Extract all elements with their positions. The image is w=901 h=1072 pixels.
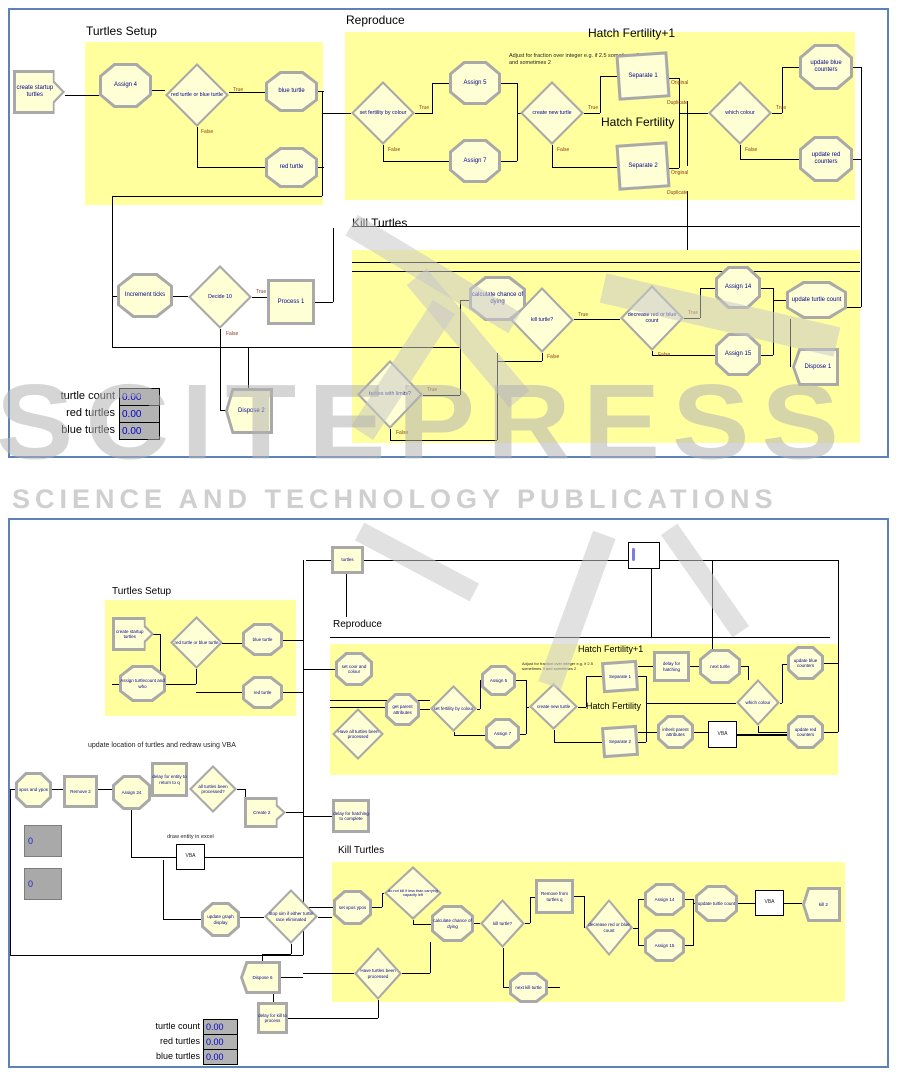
connector-line [318, 167, 324, 168]
node-separate-1-b[interactable]: Separate 1 [602, 661, 638, 692]
connector-line [372, 907, 382, 908]
node-blue-turtle-b[interactable]: blue turtle [242, 623, 283, 656]
connector-line [286, 812, 303, 813]
node-inherit-parent-attributes[interactable]: inherit parent attributes [657, 715, 694, 749]
region-title-reproduce-b: Reproduce [333, 619, 382, 630]
port-label-true: True [233, 87, 243, 93]
connector-line [318, 917, 332, 918]
connector-line [782, 67, 799, 68]
node-create-startup-turtles-b[interactable]: create startup turtles [112, 617, 154, 651]
connector-line [525, 923, 530, 924]
node-kill-2[interactable]: kill 2 [802, 887, 841, 922]
connector-line [383, 145, 384, 161]
node-set-fertility-by-colour[interactable]: set fertility by colour [351, 81, 415, 145]
connector-line [497, 353, 498, 440]
connector-line [322, 91, 323, 196]
connector-line [413, 924, 431, 925]
node-decide-10[interactable]: Decide 10 [188, 265, 252, 329]
connector-line [98, 789, 112, 790]
connector-line [574, 319, 620, 320]
gray-counter-1[interactable]: 0 [24, 825, 62, 857]
counter-label-turtle-count-b: turtle count [135, 1021, 200, 1031]
connector-line [548, 987, 560, 988]
connector-line [378, 1000, 379, 1018]
counter-value-red-turtles[interactable]: 0.00 [119, 405, 160, 423]
node-delay-for-hatching[interactable]: delay for hatching [653, 651, 690, 682]
connector-line [283, 692, 303, 693]
connector-line [390, 429, 391, 440]
node-update-turtle-count-b[interactable]: update turtle count [695, 885, 738, 922]
connector-line [669, 168, 679, 169]
connector-line [516, 680, 526, 681]
connector-line [352, 271, 860, 272]
connector-line [638, 732, 657, 733]
connector-line [861, 67, 862, 307]
node-dispose-6[interactable]: Dispose 6 [240, 961, 281, 994]
connector-line [737, 734, 787, 736]
connector-line [738, 903, 755, 904]
connector-line [679, 113, 708, 114]
port-label-false: False [201, 129, 213, 135]
node-assign-15-b[interactable]: Assign 15 [644, 929, 685, 962]
node-get-parent-attributes[interactable]: get parent attributes [385, 693, 420, 726]
connector-line [761, 355, 773, 356]
connector-line [790, 319, 791, 367]
connector-line [669, 78, 679, 79]
node-assign-5-b[interactable]: Assign 5 [481, 665, 516, 696]
port-label-true: True [688, 310, 698, 316]
node-delay-for-kill-to-process[interactable]: delay for kill to process [257, 1002, 288, 1034]
connector-line [853, 159, 861, 160]
connector-line [497, 361, 542, 362]
connector-line [346, 574, 347, 617]
connector-line [322, 113, 351, 114]
connector-line [196, 692, 242, 693]
node-delay-for-hatching-complete[interactable]: delay for hatching to complete [332, 799, 370, 833]
node-update-blue-counters-b[interactable]: update blue counters [787, 646, 824, 680]
connector-line [578, 707, 586, 708]
node-set-xpos-ypos[interactable]: set xpos ypos [333, 890, 372, 925]
connector-line [237, 789, 245, 790]
node-all-turtles-been-processed[interactable]: all turtles been processed? [189, 765, 237, 813]
connector-line [131, 810, 132, 857]
node-vba-2[interactable]: VBA [176, 844, 205, 870]
node-red-or-blue-turtle-decision[interactable]: red turtle or blue turtle [165, 63, 229, 127]
node-which-colour-b[interactable]: which colour [736, 679, 780, 726]
port-label-false: False [745, 147, 757, 153]
connector-line [772, 113, 782, 114]
connector-line [782, 664, 783, 703]
node-next-kill-turtle[interactable]: next kill turtle [509, 972, 548, 1003]
connector-line [687, 101, 688, 166]
connector-line [262, 954, 291, 955]
connector-line [163, 919, 201, 920]
node-update-blue-counters[interactable]: update blue counters [799, 44, 853, 90]
node-set-coor-and-colour[interactable]: set coor and colour [335, 652, 373, 686]
counter-label-red-turtles: red turtles [40, 407, 115, 419]
node-which-colour[interactable]: which colour [708, 81, 772, 145]
node-set-fertility-by-colour-b[interactable]: set fertility by colour [430, 685, 477, 732]
watermark-tagline-text: SCIENCE AND TECHNOLOGY PUBLICATIONS [12, 484, 778, 515]
connector-line [460, 300, 469, 301]
connector-line [420, 709, 430, 710]
connector-line [690, 666, 699, 667]
connector-line [197, 127, 198, 167]
queue-indicator [632, 548, 635, 561]
port-label-duplicate: Duplicate [667, 190, 688, 196]
connector-line [281, 977, 303, 978]
connector-line [700, 288, 715, 289]
node-kill-turtle-decision-b[interactable]: kill turtle? [480, 899, 525, 948]
connector-line [758, 732, 787, 733]
connector-line [197, 167, 265, 168]
connector-line [306, 560, 331, 561]
node-create-2[interactable]: Create 2 [244, 797, 286, 828]
connector-line [166, 684, 196, 685]
node-vba-1[interactable]: VBA [708, 721, 737, 748]
connector-line [477, 709, 480, 710]
connector-line [432, 83, 433, 113]
connector-line [584, 113, 600, 114]
node-update-red-counters-b[interactable]: update red counters [787, 715, 824, 749]
connector-line [526, 707, 527, 734]
connector-line [112, 196, 113, 347]
connector-line [112, 196, 322, 197]
connector-line [685, 899, 693, 900]
counter-label-blue-turtles-b: blue turtles [135, 1051, 200, 1061]
port-label-true: True [256, 289, 266, 295]
connector-line [638, 899, 639, 946]
connector-line [402, 973, 430, 974]
connector-line [390, 440, 497, 441]
port-label-original: Original [671, 80, 688, 86]
connector-line [684, 318, 700, 319]
node-assign-14-b[interactable]: Assign 14 [644, 883, 685, 916]
connector-line [273, 994, 274, 1002]
connector-line [748, 666, 749, 680]
connector-line [352, 226, 860, 227]
connector-line [554, 730, 555, 742]
connector-line [694, 732, 708, 733]
connector-line [784, 903, 802, 904]
node-kill-turtle-decision[interactable]: kill turtle? [510, 287, 574, 353]
empty-queue-box[interactable] [628, 542, 660, 569]
connector-line [315, 302, 333, 303]
counter-value-turtle-count-b[interactable]: 0.00 [203, 1019, 238, 1035]
connector-line [131, 857, 176, 858]
counter-label-red-turtles-b: red turtles [135, 1036, 200, 1046]
region-title-hatch-fertility: Hatch Fertility [601, 115, 674, 129]
port-label-duplicate: Duplicate [667, 100, 688, 106]
connector-line [847, 307, 861, 308]
connector-line [552, 145, 553, 167]
connector-line [501, 83, 517, 84]
connector-line [196, 669, 197, 684]
connector-line [303, 669, 335, 670]
port-label-false: False [388, 147, 400, 153]
node-xpos-and-ypos[interactable]: xpos and ypos [15, 772, 52, 808]
connector-line [503, 948, 504, 987]
node-decrease-red-or-blue-count-b[interactable]: decrease red or blue count [585, 899, 633, 956]
node-separate-1[interactable]: Separate 1 [617, 53, 669, 99]
region-title-kill-turtles: Kill Turtles [352, 216, 407, 230]
region-title-hatch-fertility-plus1-b: Hatch Fertility+1 [578, 644, 643, 654]
node-dispose-1[interactable]: Dispose 1 [792, 348, 839, 386]
region-title-hatch-fertility-b: Hatch Fertility [586, 701, 641, 711]
connector-line [240, 917, 264, 918]
port-label-true: True [419, 105, 429, 111]
connector-line [248, 347, 249, 388]
node-next-turtle[interactable]: next turtle [699, 649, 741, 684]
port-label-original: Original [671, 170, 688, 176]
node-assign-24[interactable]: Assign 24 [112, 775, 151, 810]
connector-line [163, 860, 164, 919]
gray-counter-2[interactable]: 0 [24, 868, 62, 900]
connector-line [773, 300, 786, 301]
node-separate-2-b[interactable]: Separate 2 [602, 726, 638, 757]
connector-line [303, 973, 354, 974]
node-assign-7[interactable]: Assign 7 [449, 139, 501, 183]
counter-value-turtle-count[interactable]: 0.00 [119, 388, 160, 406]
node-have-turtles-been-processed[interactable]: Have turtles been processed [354, 947, 402, 1000]
node-red-turtle[interactable]: red turtle [265, 147, 318, 188]
connector-line [838, 663, 839, 732]
connector-line [740, 145, 741, 159]
connector-line [773, 288, 774, 307]
connector-line [252, 297, 267, 298]
node-calculate-chance-of-dying-b[interactable]: calculate chance of dying [431, 905, 474, 942]
connector-line [700, 288, 701, 318]
connector-line [364, 560, 838, 561]
connector-line [501, 161, 517, 162]
connector-line [318, 91, 324, 92]
connector-line [430, 942, 431, 973]
connector-line [333, 228, 334, 302]
connector-line [415, 113, 433, 114]
node-remove-2[interactable]: Remove 2 [63, 775, 98, 808]
port-label-false: False [557, 147, 569, 153]
connector-line [52, 789, 63, 790]
node-assign-15[interactable]: Assign 15 [715, 333, 761, 376]
connector-line [173, 296, 188, 297]
node-update-graph-display[interactable]: update graph display [201, 902, 240, 937]
node-update-turtle-count[interactable]: update turtle count [786, 281, 847, 319]
node-increment-ticks[interactable]: Increment ticks [117, 273, 173, 318]
connector-line [685, 945, 693, 946]
connector-line [291, 944, 292, 954]
port-label-false: False [226, 331, 238, 337]
connector-line [65, 95, 99, 96]
node-process-1[interactable]: Process 1 [267, 279, 315, 325]
connector-line [740, 159, 799, 160]
node-delay-for-entity-return[interactable]: delay for entity to return to q [151, 762, 188, 797]
node-vba-3[interactable]: VBA [755, 890, 784, 916]
connector-line [10, 955, 303, 956]
connector-line [454, 735, 485, 736]
connector-line [283, 640, 303, 641]
connector-line [687, 191, 688, 250]
node-assign-5[interactable]: Assign 5 [449, 61, 501, 105]
region-title-reproduce: Reproduce [346, 13, 405, 27]
connector-line [838, 560, 839, 663]
node-assign-turtlecount[interactable]: Assign turtlecount and who [119, 665, 166, 702]
connector-line [288, 1018, 378, 1019]
connector-line [153, 634, 160, 635]
connector-line [220, 329, 221, 411]
connector-line [303, 816, 332, 817]
connector-line [638, 742, 646, 743]
node-assign-4[interactable]: Assign 4 [99, 63, 152, 108]
connector-line [638, 676, 646, 677]
connector-line [824, 663, 838, 664]
connector-line [432, 83, 450, 84]
connector-line [382, 893, 383, 907]
connector-line [526, 680, 527, 707]
connector-line [651, 560, 652, 637]
connector-line [517, 83, 518, 161]
node-stop-sim-decision[interactable]: stop sim if either turtle race eliminate… [264, 889, 318, 944]
connector-line [600, 76, 601, 113]
port-label-true: True [588, 105, 598, 111]
node-decrease-red-or-blue-count[interactable]: decrease red or blue count [620, 285, 684, 351]
connector-line [600, 76, 618, 77]
connector-line [646, 703, 736, 704]
connector-line [530, 897, 531, 923]
connector-line [520, 734, 526, 735]
node-turtles-queue[interactable]: turtles [331, 546, 364, 574]
port-label-false: False [396, 430, 408, 436]
node-separate-2[interactable]: Separate 2 [617, 143, 669, 189]
connector-line [330, 637, 830, 638]
connector-line [824, 732, 838, 733]
node-red-or-blue-turtle-decision-b[interactable]: red turtle or blue turtle [170, 616, 223, 669]
region-title-turtles-setup-b: Turtles Setup [112, 586, 171, 597]
connector-line [352, 262, 860, 263]
region-title-turtles-setup: Turtles Setup [86, 24, 157, 38]
connector-line [773, 307, 774, 355]
connector-line [679, 113, 680, 168]
node-turtles-with-limits[interactable]: turtles with limits? [357, 360, 423, 429]
connector-line [693, 899, 694, 946]
annotation-draw-entity: draw entity in excel [167, 834, 214, 841]
port-label-true: True [427, 387, 437, 393]
annotation-update-location: update location of turtles and redraw us… [88, 742, 236, 750]
connector-line [853, 67, 861, 68]
connector-line [780, 703, 782, 704]
figure-page: Turtles Setup Reproduce Hatch Fertility+… [0, 0, 901, 1072]
node-red-turtle-b[interactable]: red turtle [242, 676, 283, 709]
port-label-false: False [547, 354, 559, 360]
counter-value-blue-turtles-b[interactable]: 0.00 [203, 1049, 238, 1065]
connector-line [586, 676, 602, 677]
counter-value-red-turtles-b[interactable]: 0.00 [203, 1034, 238, 1050]
connector-line [10, 789, 11, 955]
node-assign-7-b[interactable]: Assign 7 [485, 718, 520, 749]
counter-value-blue-turtles[interactable]: 0.00 [119, 422, 160, 440]
annotation-fraction-adjust-b: Adjust for fraction over integer e.g. if… [522, 662, 596, 672]
connector-line [383, 161, 449, 162]
connector-line [741, 666, 748, 667]
counter-label-blue-turtles: blue turtles [40, 424, 115, 436]
counter-label-turtle-count: turtle count [40, 390, 115, 402]
connector-line [222, 643, 242, 644]
connector-line [460, 300, 461, 395]
node-have-all-turtles-been-processed[interactable]: Have all turtles been processed [332, 708, 384, 760]
connector-line [112, 347, 460, 348]
connector-line [205, 857, 303, 858]
region-title-hatch-fertility-plus1: Hatch Fertility+1 [588, 26, 675, 40]
connector-line [554, 742, 602, 743]
node-remove-from-turtles-q[interactable]: Remove from turtles q [535, 879, 574, 914]
node-update-red-counters[interactable]: update red counters [799, 136, 853, 182]
region-title-kill-turtles-b: Kill Turtles [338, 845, 384, 856]
connector-line [152, 90, 165, 91]
node-assign-14[interactable]: Assign 14 [715, 266, 761, 309]
port-label-true: True [578, 312, 588, 318]
connector-line [542, 353, 543, 361]
node-create-new-turtle-b[interactable]: create new turtle [529, 683, 578, 730]
connector-line [574, 896, 584, 897]
connector-line [552, 167, 617, 168]
node-blue-turtle[interactable]: blue turtle [265, 71, 318, 112]
port-label-true: True [776, 105, 786, 111]
node-dispose-2[interactable]: Dispose 2 [225, 388, 273, 434]
connector-line [638, 666, 653, 667]
node-create-new-turtle[interactable]: create new turtle [520, 81, 584, 145]
port-label-false: False [658, 352, 670, 358]
node-create-startup-turtles[interactable]: create startup turtles [13, 70, 65, 114]
connector-line [761, 288, 773, 289]
connector-line [423, 395, 460, 396]
